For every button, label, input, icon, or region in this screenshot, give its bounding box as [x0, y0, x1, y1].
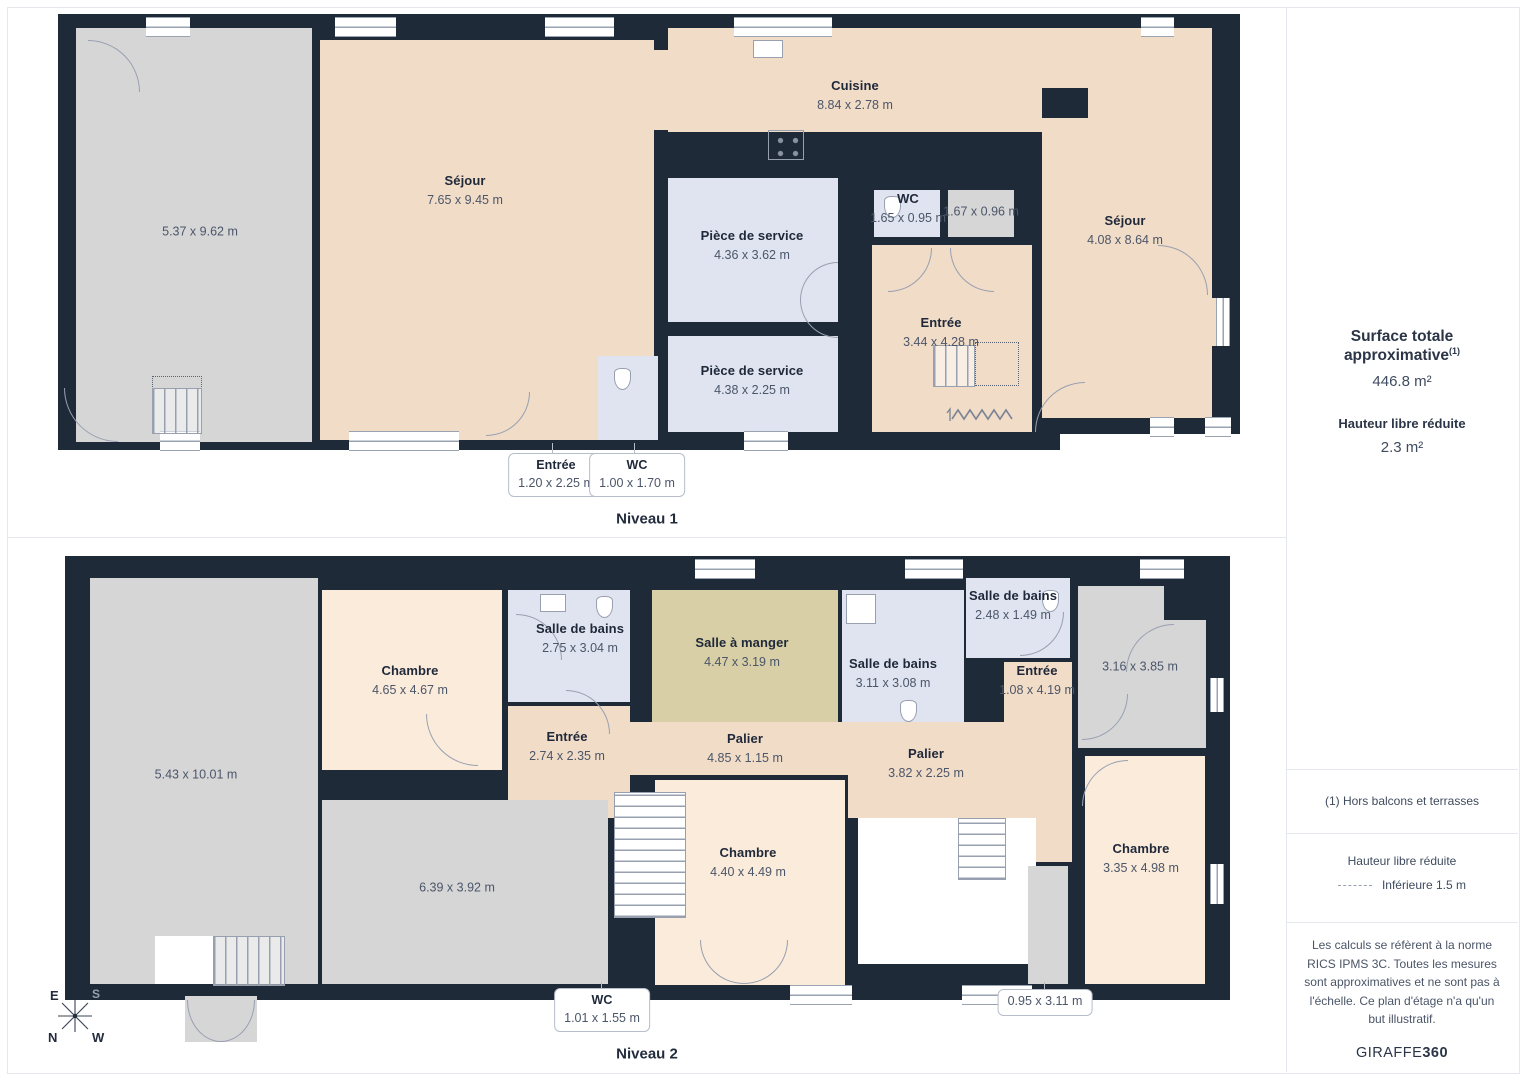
legend: Hauteur libre réduite Inférieure 1.5 m — [1296, 854, 1508, 892]
room-connector — [654, 50, 668, 130]
stairs — [614, 792, 686, 918]
room-label: Salle de bains2.75 x 3.04 m — [536, 619, 624, 657]
stairs — [933, 345, 975, 387]
callout-couloir: 0.95 x 3.11 m — [998, 989, 1093, 1016]
stairs — [152, 388, 202, 434]
floor-plan-page: 5.37 x 9.62 m Séjour7.65 x 9.45 m Cuisin… — [0, 0, 1526, 1080]
compass-icon: E S N W — [36, 980, 116, 1052]
room-label: Pièce de service4.38 x 2.25 m — [701, 361, 804, 399]
room-label: Pièce de service4.36 x 3.62 m — [701, 226, 804, 264]
surface-value: 446.8 m² — [1296, 373, 1508, 390]
disclaimer: Les calculs se réfèrent à la norme RICS … — [1300, 936, 1504, 1061]
footnote-text: (1) Hors balcons et terrasses — [1296, 794, 1508, 808]
reduced-height-title: Hauteur libre réduite — [1296, 416, 1508, 431]
sidebar-divider — [1286, 833, 1518, 834]
room-label: Salle de bains2.48 x 1.49 m — [969, 586, 1057, 624]
floor-title-niveau-2: Niveau 2 — [616, 1046, 678, 1063]
room-label: Séjour4.08 x 8.64 m — [1087, 211, 1163, 249]
stairs-dashed-outline — [152, 376, 202, 387]
callout-wc-2: WC1.01 x 1.55 m — [554, 988, 650, 1032]
room-label: 5.43 x 10.01 m — [155, 766, 238, 785]
footnote-ref: (1) — [1449, 346, 1460, 356]
stairs — [213, 936, 285, 986]
stairs — [958, 818, 1006, 880]
window — [1210, 864, 1224, 904]
slope-zigzag — [944, 405, 1020, 425]
room-label: Chambre4.65 x 4.67 m — [372, 661, 448, 699]
svg-text:S: S — [92, 987, 100, 1001]
svg-text:N: N — [48, 1030, 57, 1045]
dashed-line-sample — [1338, 885, 1372, 886]
room-label: Cuisine8.84 x 2.78 m — [817, 76, 893, 114]
room-label: Palier4.85 x 1.15 m — [707, 729, 783, 767]
room-label: Chambre3.35 x 4.98 m — [1103, 839, 1179, 877]
cooktop-icon — [768, 130, 804, 160]
brand-logo: GIRAFFE360 — [1300, 1045, 1504, 1061]
stair-landing — [155, 936, 213, 984]
window — [1205, 417, 1231, 437]
reduced-height-value: 2.3 m² — [1296, 439, 1508, 456]
reduced-height-zone — [975, 342, 1019, 386]
svg-text:E: E — [50, 988, 59, 1003]
wall-notch — [1164, 586, 1206, 620]
window — [545, 17, 614, 37]
legend-item: Inférieure 1.5 m — [1296, 878, 1508, 892]
window — [790, 985, 852, 1005]
sidebar-border — [1286, 8, 1287, 1072]
bath-sink — [540, 594, 566, 612]
svg-text:W: W — [92, 1030, 105, 1045]
room-label: Salle à manger4.47 x 3.19 m — [695, 633, 788, 671]
room-label: Entrée1.08 x 4.19 m — [999, 661, 1075, 699]
disclaimer-text: Les calculs se réfèrent à la norme RICS … — [1300, 936, 1504, 1029]
window — [1141, 17, 1174, 37]
room-label: 3.16 x 3.85 m — [1102, 658, 1178, 677]
room-label: Entrée2.74 x 2.35 m — [529, 727, 605, 765]
room-label: Palier3.82 x 2.25 m — [888, 744, 964, 782]
callout-wc: WC1.00 x 1.70 m — [589, 453, 685, 497]
legend-title: Hauteur libre réduite — [1296, 854, 1508, 868]
room-couloir-095 — [1028, 866, 1068, 984]
window — [160, 431, 200, 451]
window — [1140, 559, 1184, 579]
room-label: 6.39 x 3.92 m — [419, 879, 495, 898]
room-label: 1.67 x 0.96 m — [943, 203, 1019, 222]
kitchen-sink — [753, 40, 783, 58]
surface-title: Surface totale approximative(1) — [1296, 328, 1508, 365]
stairwell-void — [858, 818, 1036, 964]
floor-divider — [8, 537, 1286, 538]
window — [349, 431, 459, 451]
room-label: 5.37 x 9.62 m — [162, 223, 238, 242]
window — [146, 17, 190, 37]
window — [695, 559, 755, 579]
shower — [846, 594, 876, 624]
room-label: Séjour7.65 x 9.45 m — [427, 171, 503, 209]
footnote: (1) Hors balcons et terrasses — [1296, 794, 1508, 808]
room-label: Salle de bains3.11 x 3.08 m — [849, 654, 937, 692]
window — [744, 431, 788, 451]
window — [1150, 417, 1174, 437]
window — [1216, 298, 1230, 346]
surface-summary: Surface totale approximative(1) 446.8 m²… — [1296, 328, 1508, 456]
wall-notch — [1042, 88, 1088, 118]
sidebar-divider — [1286, 922, 1518, 923]
window — [734, 17, 832, 37]
room-label: Chambre4.40 x 4.49 m — [710, 843, 786, 881]
window — [335, 17, 396, 37]
room-label: WC1.65 x 0.95 m — [870, 189, 946, 227]
window — [905, 559, 963, 579]
room-label: Entrée3.44 x 4.28 m — [903, 313, 979, 351]
window — [1210, 678, 1224, 712]
sidebar-divider — [1286, 769, 1518, 770]
floor-title-niveau-1: Niveau 1 — [616, 511, 678, 528]
